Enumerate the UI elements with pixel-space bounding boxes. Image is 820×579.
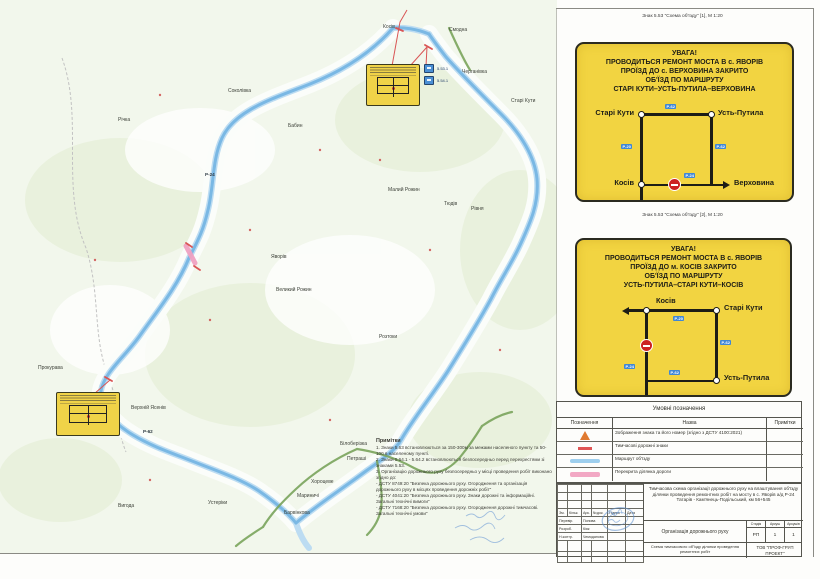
person-role: Перевір. (558, 517, 582, 525)
note-line: - ДСТУ 7168:20 "Безпека дорожнього руху.… (376, 505, 552, 516)
section-title: Організація дорожнього руху (643, 521, 746, 543)
map-place-label: Розтоки (379, 334, 397, 340)
map-sign-ref-label: 5.53.1 (437, 66, 448, 71)
sign-2-caption: Знак 5.53 "Схема об'їзду" [2], М 1:20 (575, 213, 790, 218)
map-sign-ref-label: 5.54.1 (437, 78, 448, 83)
sign-2-label-bottom-right: Усть-Путила (724, 373, 769, 382)
legend-col-symbol: Позначення (557, 417, 613, 429)
frame-bottom-line (0, 553, 557, 554)
sign-1-node-stari-kuty (638, 111, 645, 118)
sign-1-road-top (641, 113, 713, 116)
mini-no-entry-dot (392, 87, 395, 90)
sign-2-header-text: УВАГА! ПРОВОДИТЬСЯ РЕМОНТ МОСТА В с. ЯВО… (577, 245, 790, 290)
person-name: Чемоданова (582, 533, 608, 541)
sign-2-road-number-top: Р-20 (673, 316, 684, 321)
map-place-label: Вигода (118, 503, 134, 509)
map-place-label: Яворів (271, 254, 287, 260)
sign-1-label-top-right: Усть-Путила (718, 108, 763, 117)
person-role: Розроб. (558, 525, 582, 533)
temporary-sign-mark-icon (578, 447, 592, 450)
mini-sign-text-lines (370, 67, 416, 76)
sign-2-label-top-left: Косів (656, 296, 676, 305)
mini-no-entry-dot (87, 415, 90, 418)
map-place-label: Петраші (347, 456, 366, 462)
map-mini-detour-sign-2 (56, 392, 120, 436)
sheet-label: Аркуш (765, 521, 784, 528)
scheme-title: Схема тимчасового об'їзду ділянки провед… (643, 543, 746, 558)
person-name: Попова (582, 517, 608, 525)
project-title: Тимчасова схема організації дорожнього р… (643, 484, 803, 521)
person-role: Н.контр. (558, 533, 582, 541)
sign-1-road-number-bottom: Р-24 (684, 173, 695, 178)
mini-sign-diagram (377, 77, 409, 94)
signature-cell (608, 533, 626, 541)
map-place-label: Прокурава (38, 365, 63, 371)
map-mini-detour-sign-1 (366, 64, 420, 106)
sign-1-label-bottom-left: Косів (597, 178, 634, 187)
warning-sign-symbol-icon (580, 431, 590, 440)
map-place-label: Великий Рожин (276, 287, 312, 293)
legend-col-name: Назва (613, 417, 767, 429)
signature-cell (608, 525, 626, 533)
sign-1-road-number-left: Р-20 (621, 144, 632, 149)
map-place-label: Старі Кути (511, 98, 535, 104)
map-road-number-label: Р-24 (205, 172, 215, 177)
note-line: - ДСТУ 4041:20 "Безпека дорожнього руху.… (376, 493, 552, 504)
map-place-label: Соколівка (228, 88, 251, 94)
sign-1-node-ust-putyla (708, 111, 715, 118)
detour-sign-1: УВАГА! ПРОВОДИТЬСЯ РЕМОНТ МОСТА В с. ЯВО… (575, 42, 794, 202)
person-row: Розроб. Кіяк (558, 525, 644, 533)
person-row: Перевір. Попова (558, 517, 644, 525)
legend-row-name: Маршрут об'їзду (613, 455, 766, 463)
sign-2-no-entry-icon (640, 339, 653, 352)
notes-block: Примітки 1. Знаки 5.63 встановлюються за… (376, 438, 552, 517)
frame-right-line (813, 8, 814, 557)
map-place-label: Бабин (288, 123, 302, 129)
map-place-label: Смодна (449, 27, 467, 33)
col-kilk: Кільк. (568, 509, 582, 517)
sign-1-road-right (710, 113, 713, 186)
frame-top-line (556, 8, 814, 9)
sign-2-road-number-left: Р-24 (624, 364, 635, 369)
sign-2-node-kosiv (643, 307, 650, 314)
legend-row-name: Перекрита ділянка дороги (613, 468, 766, 476)
sign-2-road-left (645, 309, 648, 395)
stage-label: Стадія (746, 521, 765, 528)
sign-1-no-entry-icon (668, 178, 681, 191)
sheet-value: 1 (765, 528, 784, 543)
sign-1-caption: Знак 5.53 "Схема об'їзду" [1], М 1:20 (575, 14, 790, 19)
sheets-value: 1 (784, 528, 802, 543)
sign-1-label-top-left: Старі Кути (579, 108, 634, 117)
stage-value: РП (746, 528, 765, 543)
note-line: 2. Знаки 5.64.1 - 5.64.2 встановлюються … (376, 457, 552, 468)
legend-row-name: Тимчасові дорожні знаки (613, 442, 766, 450)
map-place-label: Косів (383, 24, 395, 30)
note-line: 1. Знаки 5.63 встановлюються за 150-300м… (376, 445, 552, 456)
map-place-label: Мариничі (297, 493, 319, 499)
sign-2-road-number-bottom: Р-62 (669, 370, 680, 375)
col-ark: Арк. (582, 509, 592, 517)
sign-1-arrow-head (723, 181, 730, 189)
mini-sign-diagram (69, 405, 107, 423)
revision-table: Зм. Кільк. Арк. №док. Підпис Дата Переві… (557, 484, 644, 563)
detour-sign-2: УВАГА! ПРОВОДИТЬСЯ РЕМОНТ МОСТА В с. ЯВО… (575, 238, 792, 397)
sign-1-road-number-top: Р-62 (665, 104, 676, 109)
mini-sign-text-lines (60, 395, 116, 404)
map-place-label: Рівня (471, 206, 484, 212)
sign-2-road-right (715, 309, 718, 382)
map-place-label: Тюдів (444, 201, 457, 207)
map-place-label: Барвінкова (284, 510, 310, 516)
col-zm: Зм. (558, 509, 568, 517)
sign-2-road-bottom (646, 380, 717, 383)
sign-2-arrow-head (622, 307, 629, 315)
closed-road-line-icon (570, 472, 600, 477)
map-place-label: Хороцеве (311, 479, 334, 485)
col-doc: №док. (592, 509, 608, 517)
scanned-detour-scheme-sheet: КосівСмоднаЧерганівкаСтарі КутиСоколівка… (0, 0, 820, 579)
revision-header-row: Зм. Кільк. Арк. №док. Підпис Дата (558, 509, 644, 517)
sign-1-node-kosiv (638, 181, 645, 188)
note-line: - ДСТУ 8749:20 "Безпека дорожнього руху.… (376, 481, 552, 492)
sign-1-label-arrow: Верховина (734, 178, 774, 187)
map-place-label: Черганівка (462, 69, 487, 75)
map-place-label: Малий Рожин (388, 187, 420, 193)
map-place-label: Річка (118, 117, 130, 123)
map-road-number-label: Р-62 (143, 429, 153, 434)
sign-1-road-number-right: Р-62 (715, 144, 726, 149)
sign-2-node-stari-kuty (713, 307, 720, 314)
sign-2-node-ust-putyla (713, 377, 720, 384)
note-line: 3. Організацію дорожнього руху безпосере… (376, 469, 552, 480)
col-signature: Підпис (608, 509, 626, 517)
signature-cell (608, 517, 626, 525)
sheets-label: Аркушів (784, 521, 802, 528)
legend-col-notes: Примітки (767, 417, 803, 429)
map-sign-icon-5-53-1 (424, 64, 434, 73)
sign-1-header-text: УВАГА! ПРОВОДИТЬСЯ РЕМОНТ МОСТА В с. ЯВО… (577, 49, 792, 94)
sign-1-road-bottom (641, 184, 723, 187)
sign-2-road-number-right: Р-62 (720, 340, 731, 345)
map-place-label: Верхній Ясенів (131, 405, 166, 411)
company-name: ТОВ "ПРОФ-ГРУП ПРОЕКТ" (746, 543, 803, 558)
map-sign-icon-5-54-1 (424, 76, 434, 85)
title-block: Зм. Кільк. Арк. №док. Підпис Дата Переві… (556, 483, 802, 557)
sign-2-label-top-right: Старі Кути (724, 303, 763, 312)
person-row: Н.контр. Чемоданова (558, 533, 644, 541)
col-date: Дата (626, 509, 644, 517)
map-place-label: Білоберізка (340, 441, 367, 447)
person-name: Кіяк (582, 525, 608, 533)
legend-title: Умовні позначення (557, 402, 801, 418)
map-place-label: Устеріки (208, 500, 227, 506)
legend-table: Умовні позначення Позначення Назва Примі… (556, 401, 802, 483)
detour-route-line-icon (570, 459, 600, 463)
legend-row-name: Зображення знака та його номер (згідно з… (613, 429, 766, 437)
notes-title: Примітки (376, 438, 552, 444)
